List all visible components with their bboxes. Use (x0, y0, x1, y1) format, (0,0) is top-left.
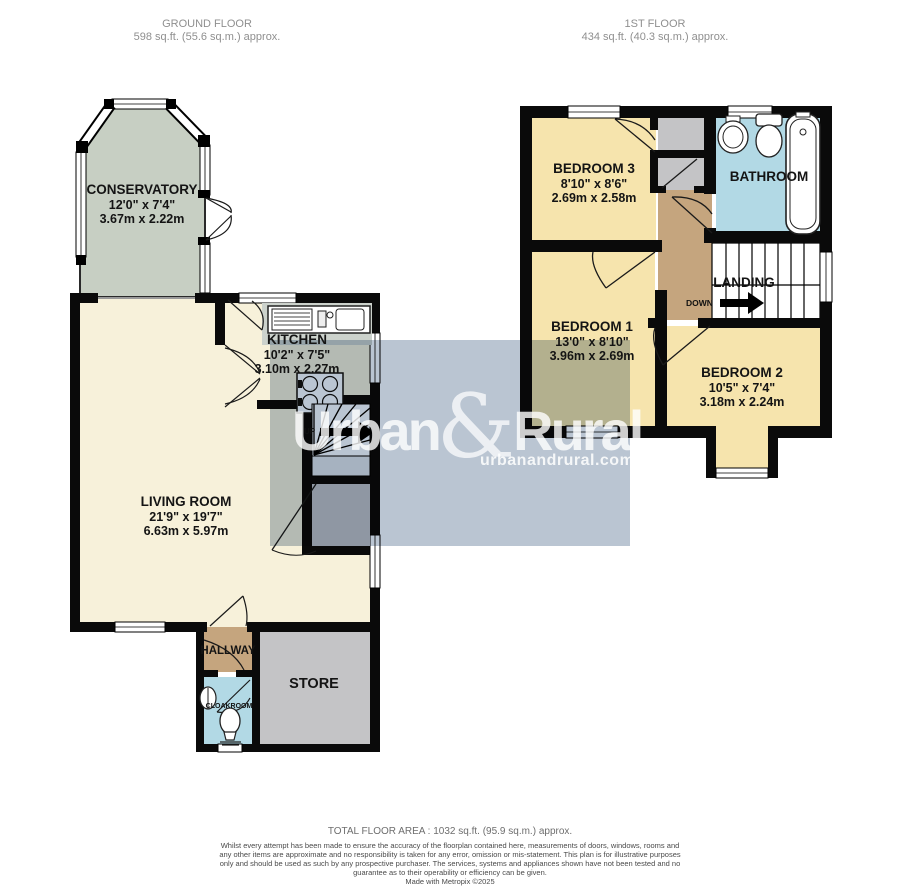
room-label-cloakroom: CLOAKROOM (206, 700, 253, 715)
up-label: UP (304, 427, 315, 436)
bathroom-toilet-icon (756, 114, 782, 157)
room-label-bedroom1: BEDROOM 1 13'0" x 8'10" 3.96m x 2.69m (550, 320, 635, 364)
footer: TOTAL FLOOR AREA : 1032 sq.ft. (95.9 sq.… (0, 826, 900, 887)
room-label-landing: LANDING (713, 276, 775, 291)
room-label-bedroom2: BEDROOM 2 10'5" x 7'4" 3.18m x 2.24m (700, 366, 785, 410)
room-label-conservatory: CONSERVATORY 12'0" x 7'4" 3.67m x 2.22m (86, 183, 197, 227)
credit-text: Made with Metropix ©2025 (0, 877, 900, 887)
disclaimer-text: Whilst every attempt has been made to en… (215, 841, 685, 877)
room-label-living-room: LIVING ROOM 21'9" x 19'7" 6.63m x 5.97m (141, 495, 232, 539)
room-label-bathroom: BATHROOM (730, 170, 809, 185)
room-label-kitchen: KITCHEN 10'2" x 7'5" 3.10m x 2.27m (255, 333, 340, 377)
watermark-url: urbanandrural.com (480, 452, 634, 470)
down-label: DOWN (686, 298, 713, 308)
floorplan-page: GROUND FLOOR 598 sq.ft. (55.6 sq.m.) app… (0, 0, 900, 888)
conservatory-door-arcs (206, 198, 231, 240)
room-label-store: STORE (289, 677, 339, 692)
cupboard-top (658, 118, 704, 152)
room-label-bedroom3: BEDROOM 3 8'10" x 8'6" 2.69m x 2.58m (552, 162, 637, 206)
room-label-hallway: HALLWAY (200, 644, 255, 659)
total-floor-area: TOTAL FLOOR AREA : 1032 sq.ft. (95.9 sq.… (0, 826, 900, 837)
